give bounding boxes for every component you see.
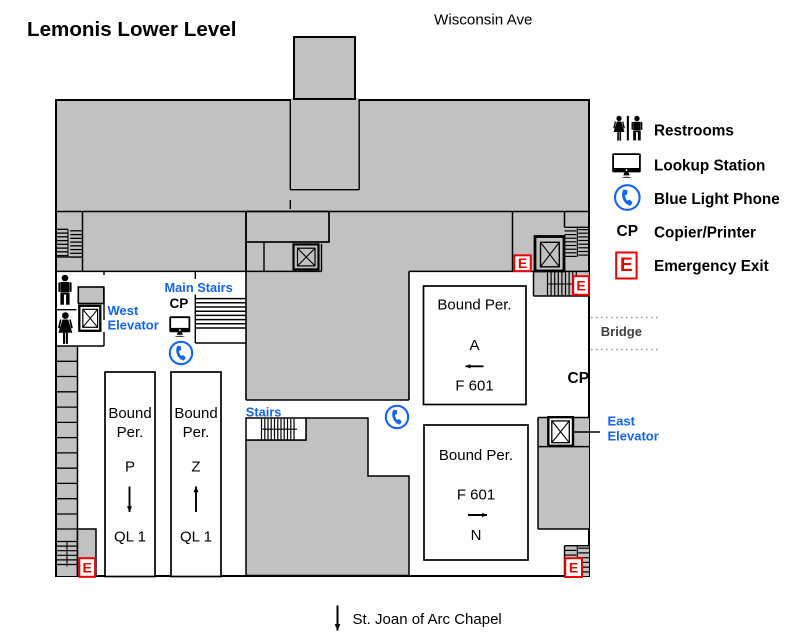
svg-text:F 601: F 601 [455,378,493,395]
svg-text:Blue Light Phone: Blue Light Phone [654,191,780,208]
svg-text:QL 1: QL 1 [180,529,212,546]
svg-text:East: East [608,413,636,428]
svg-text:CP: CP [617,223,639,240]
svg-text:Per.: Per. [183,424,210,441]
svg-text:F 601: F 601 [457,487,495,504]
svg-text:Wisconsin Ave: Wisconsin Ave [434,11,532,28]
svg-text:P: P [125,459,135,476]
svg-text:A: A [469,337,479,354]
svg-text:QL 1: QL 1 [114,529,146,546]
svg-text:Lookup Station: Lookup Station [654,158,765,175]
svg-text:CP: CP [568,370,590,387]
svg-text:Emergency Exit: Emergency Exit [654,258,769,275]
svg-text:Bound: Bound [174,405,217,422]
svg-text:West: West [108,303,139,318]
svg-text:E: E [569,560,578,576]
svg-text:Bound: Bound [108,405,151,422]
svg-text:Bridge: Bridge [601,324,642,339]
svg-text:Bound Per.: Bound Per. [439,447,513,464]
svg-text:CP: CP [170,296,189,311]
svg-text:Copier/Printer: Copier/Printer [654,225,756,242]
svg-text:Z: Z [191,459,200,476]
svg-text:N: N [471,527,482,544]
svg-text:Restrooms: Restrooms [654,123,734,140]
svg-text:Stairs: Stairs [246,405,282,420]
svg-text:E: E [576,278,585,294]
svg-text:Bound Per.: Bound Per. [437,297,511,314]
svg-text:Elevator: Elevator [608,428,659,443]
svg-text:E: E [620,255,633,276]
svg-text:Main Stairs: Main Stairs [165,280,233,295]
svg-text:Lemonis Lower Level: Lemonis Lower Level [27,18,236,41]
svg-text:St. Joan of Arc Chapel: St. Joan of Arc Chapel [353,611,502,628]
svg-text:Elevator: Elevator [108,318,159,333]
svg-text:Per.: Per. [117,424,144,441]
svg-text:E: E [518,255,527,271]
svg-text:E: E [83,560,92,576]
